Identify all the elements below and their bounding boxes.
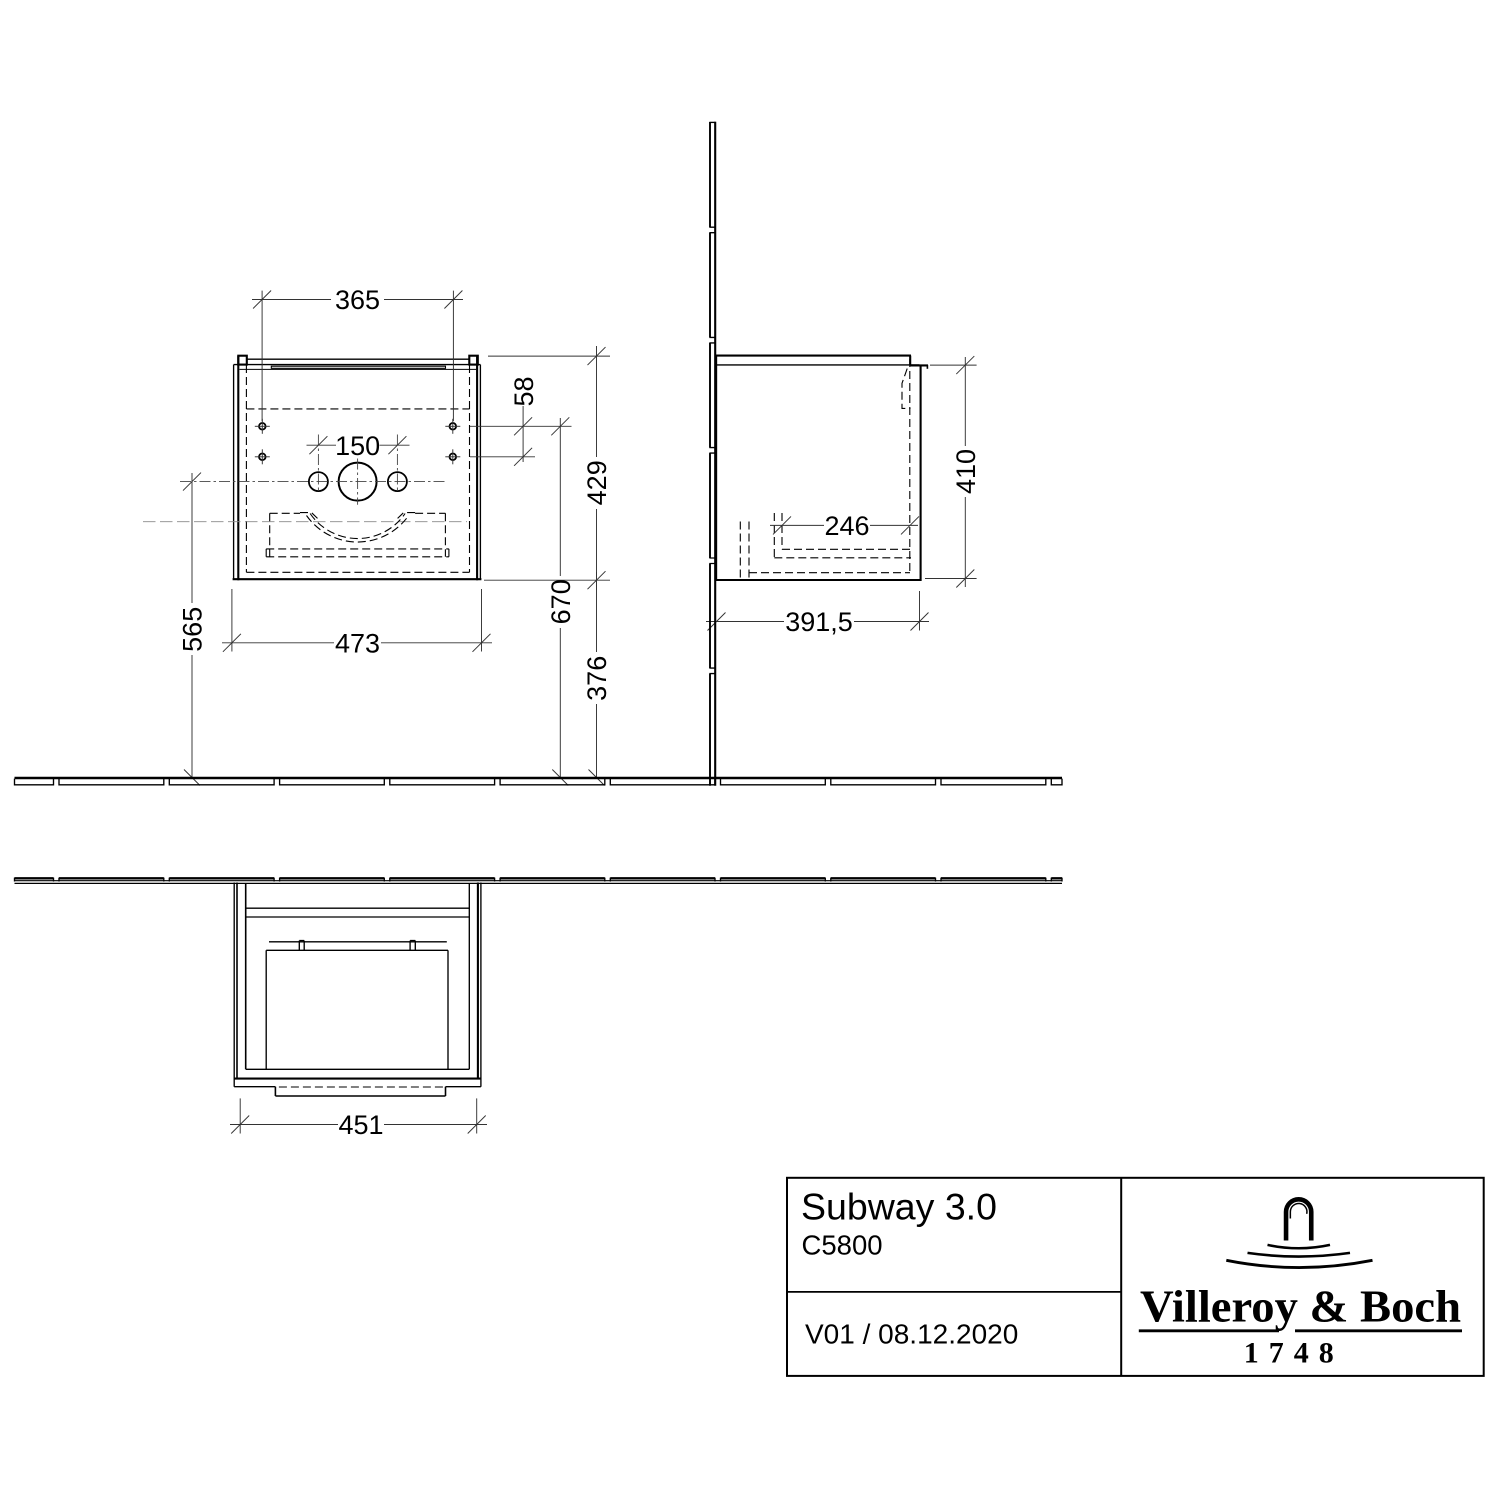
svg-text:V01 / 08.12.2020: V01 / 08.12.2020 [805,1319,1018,1350]
svg-text:58: 58 [509,376,539,406]
svg-text:246: 246 [824,511,869,541]
svg-text:565: 565 [178,607,208,652]
svg-text:473: 473 [335,629,380,659]
svg-text:391,5: 391,5 [785,607,853,637]
svg-text:Subway 3.0: Subway 3.0 [801,1186,997,1228]
svg-text:410: 410 [951,449,981,494]
svg-text:365: 365 [335,285,380,315]
svg-text:451: 451 [338,1110,383,1140]
svg-text:429: 429 [582,460,612,505]
svg-text:1748: 1748 [1244,1337,1344,1370]
svg-text:376: 376 [582,656,612,701]
svg-text:150: 150 [335,431,380,461]
svg-text:C5800: C5800 [802,1230,883,1261]
svg-text:Villeroy & Boch: Villeroy & Boch [1140,1280,1461,1331]
svg-text:670: 670 [546,579,576,624]
